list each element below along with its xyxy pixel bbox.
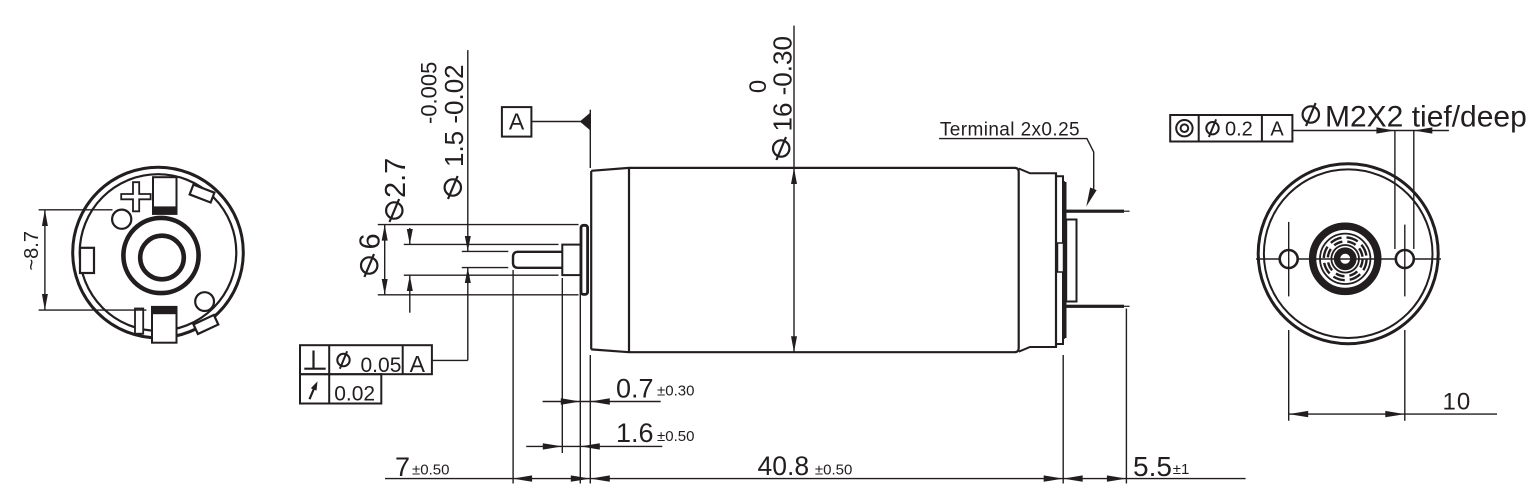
svg-text:0: 0 — [745, 80, 772, 93]
svg-text:±0.50: ±0.50 — [815, 462, 852, 479]
svg-text:1.6: 1.6 — [616, 418, 654, 448]
svg-text:-0.005: -0.005 — [417, 62, 442, 124]
svg-text:A: A — [410, 351, 426, 377]
svg-text:16 -0.30: 16 -0.30 — [768, 36, 798, 131]
svg-text:~8.7: ~8.7 — [21, 231, 43, 270]
svg-text:1.5 -0.02: 1.5 -0.02 — [439, 64, 469, 167]
svg-text:6: 6 — [355, 233, 387, 249]
svg-text:0.7: 0.7 — [616, 373, 654, 403]
svg-text:A: A — [509, 109, 525, 135]
svg-text:0.05: 0.05 — [361, 354, 402, 377]
svg-text:0.02: 0.02 — [334, 383, 375, 406]
svg-text:5.5: 5.5 — [1133, 451, 1172, 482]
svg-text:M2X2 tief/deep: M2X2 tief/deep — [1325, 101, 1527, 134]
svg-text:2.7: 2.7 — [380, 158, 412, 198]
svg-text:A: A — [1270, 119, 1284, 141]
svg-text:10: 10 — [1443, 388, 1472, 415]
svg-text:±0.50: ±0.50 — [412, 462, 449, 479]
svg-text:±0.30: ±0.30 — [657, 383, 694, 400]
svg-text:±0.50: ±0.50 — [657, 428, 694, 445]
svg-text:Terminal 2x0.25: Terminal 2x0.25 — [940, 120, 1080, 141]
svg-text:0.2: 0.2 — [1225, 119, 1253, 141]
svg-text:40.8: 40.8 — [758, 451, 810, 481]
svg-text:7: 7 — [395, 452, 410, 482]
svg-text:±1: ±1 — [1173, 461, 1190, 478]
